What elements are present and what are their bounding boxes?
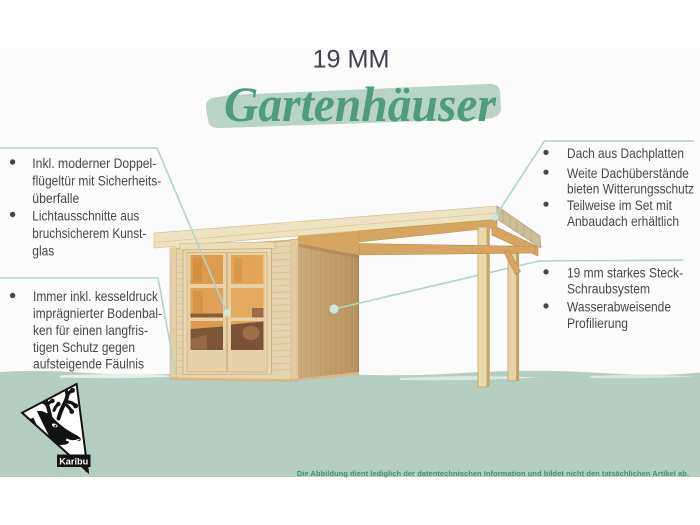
svg-text:Wasserabweisende: Wasserabweisende [567, 299, 671, 315]
svg-text:19 MM: 19 MM [313, 46, 390, 74]
svg-text:bieten Witterungsschutz: bieten Witterungsschutz [567, 181, 694, 197]
svg-text:imprägnierter Bodenbal-: imprägnierter Bodenbal- [33, 305, 162, 321]
svg-text:19 mm starkes Steck-: 19 mm starkes Steck- [567, 265, 683, 281]
svg-text:Profilierung: Profilierung [567, 315, 628, 331]
svg-text:Lichtausschnitte aus: Lichtausschnitte aus [32, 207, 139, 223]
svg-text:überfalle: überfalle [32, 190, 79, 206]
svg-text:flügeltür mit Sicherheits-: flügeltür mit Sicherheits- [32, 172, 161, 188]
svg-text:Weite Dachüberstände: Weite Dachüberstände [567, 165, 689, 181]
svg-text:tigen Schutz gegen: tigen Schutz gegen [33, 339, 135, 355]
svg-text:Gartenhäuser: Gartenhäuser [224, 76, 497, 132]
svg-text:Immer inkl. kesseldruck: Immer inkl. kesseldruck [33, 288, 159, 304]
svg-text:glas: glas [32, 242, 54, 258]
svg-text:Die Abbildung dient lediglich: Die Abbildung dient lediglich der datent… [297, 469, 689, 478]
svg-text:bruchsicherem Kunst-: bruchsicherem Kunst- [32, 225, 146, 241]
svg-text:aufsteigende Fäulnis: aufsteigende Fäulnis [33, 356, 144, 372]
svg-text:Anbaudach erhältlich: Anbaudach erhältlich [567, 213, 679, 229]
svg-text:ken für einen langfris-: ken für einen langfris- [33, 322, 148, 338]
svg-text:Karibu: Karibu [59, 456, 88, 467]
svg-text:Teilweise im Set mit: Teilweise im Set mit [567, 197, 672, 213]
svg-text:Schraubsystem: Schraubsystem [567, 281, 650, 297]
svg-text:Inkl. moderner Doppel-: Inkl. moderner Doppel- [32, 155, 156, 171]
svg-text:Dach aus Dachplatten: Dach aus Dachplatten [567, 145, 684, 161]
